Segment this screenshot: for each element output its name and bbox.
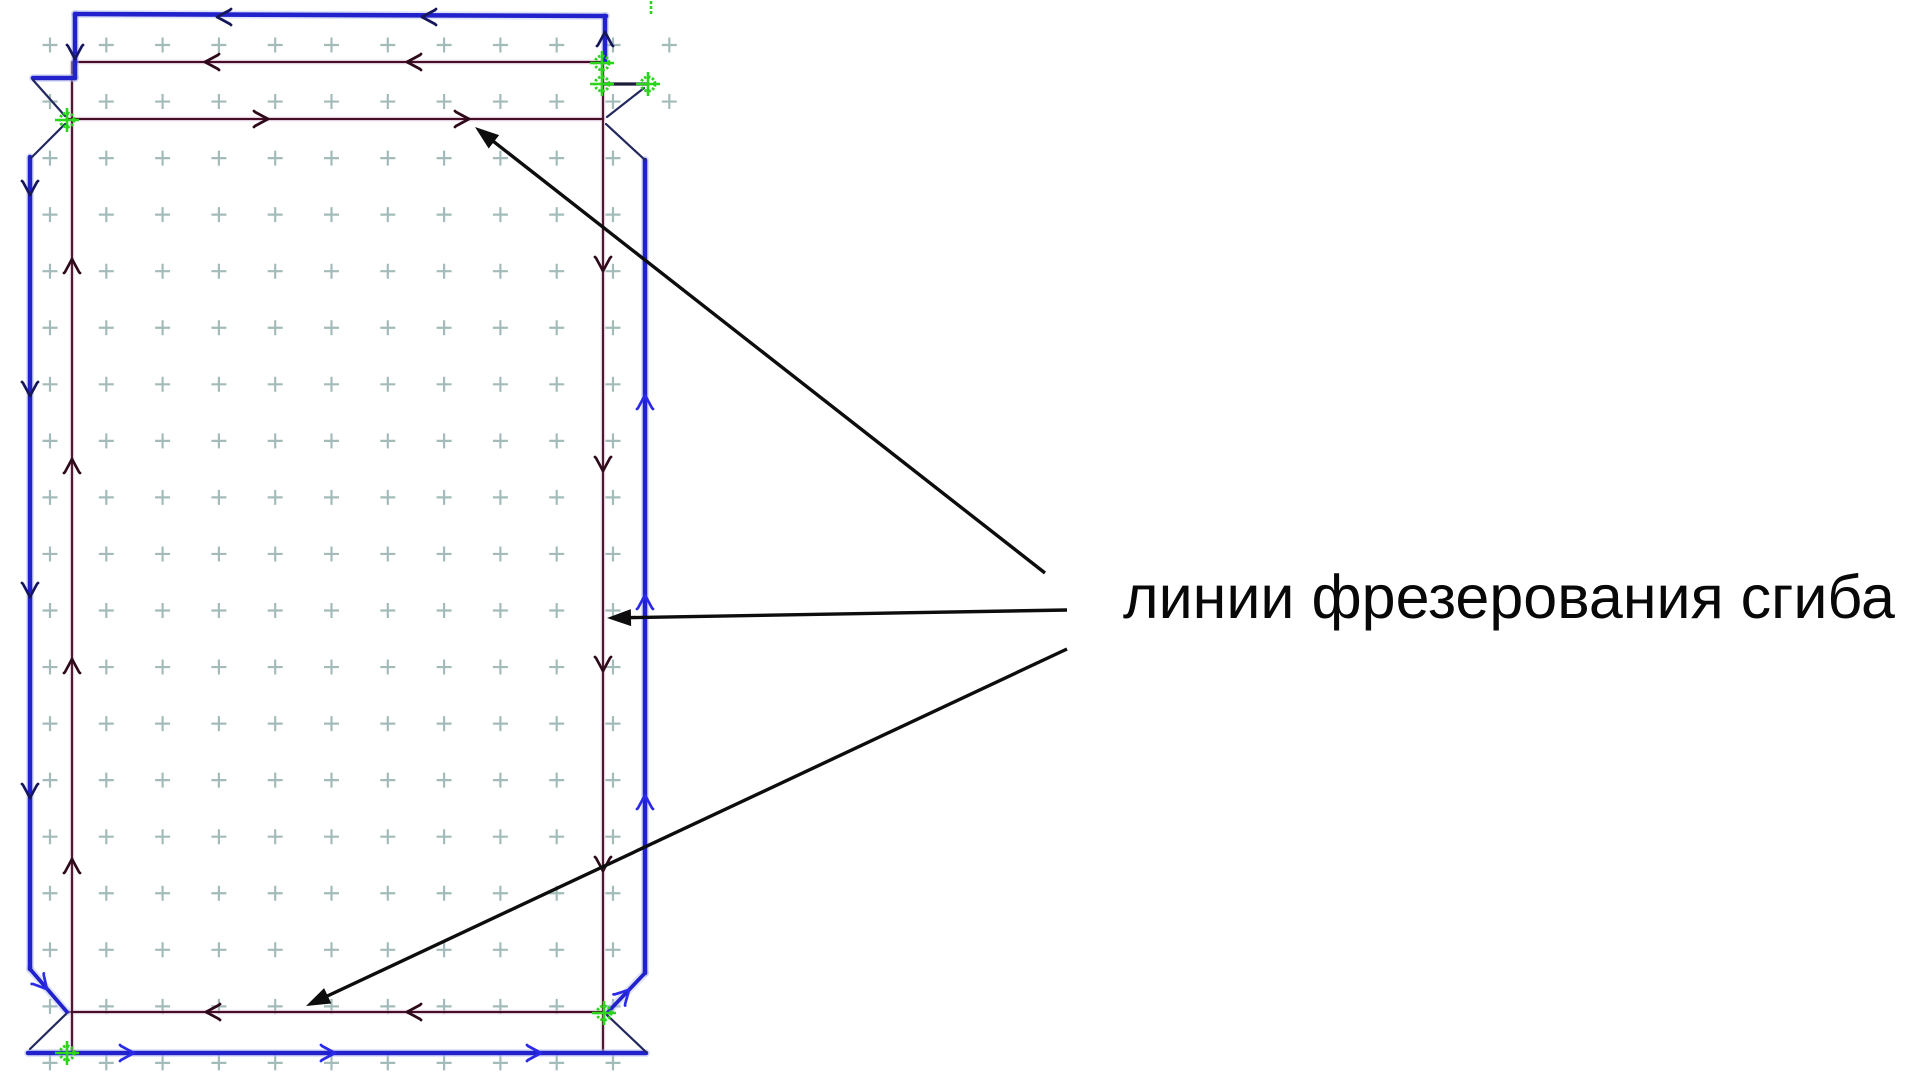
snap-marker	[590, 51, 614, 75]
snap-marker	[55, 108, 79, 132]
grid-marks	[43, 38, 677, 1071]
cad-viewport: линии фрезерования сгиба	[0, 0, 1920, 1077]
snap-markers	[55, 51, 660, 1065]
annotation-arrows	[306, 127, 1067, 1006]
corner-relief-lines	[30, 80, 648, 1052]
snap-marker	[55, 1041, 79, 1065]
cad-drawing-canvas	[0, 0, 1920, 1077]
direction-chevrons	[21, 8, 655, 1063]
outer-contour	[28, 14, 646, 1053]
snap-marker	[590, 72, 614, 96]
annotation-label: линии фрезерования сгиба	[1123, 567, 1895, 628]
